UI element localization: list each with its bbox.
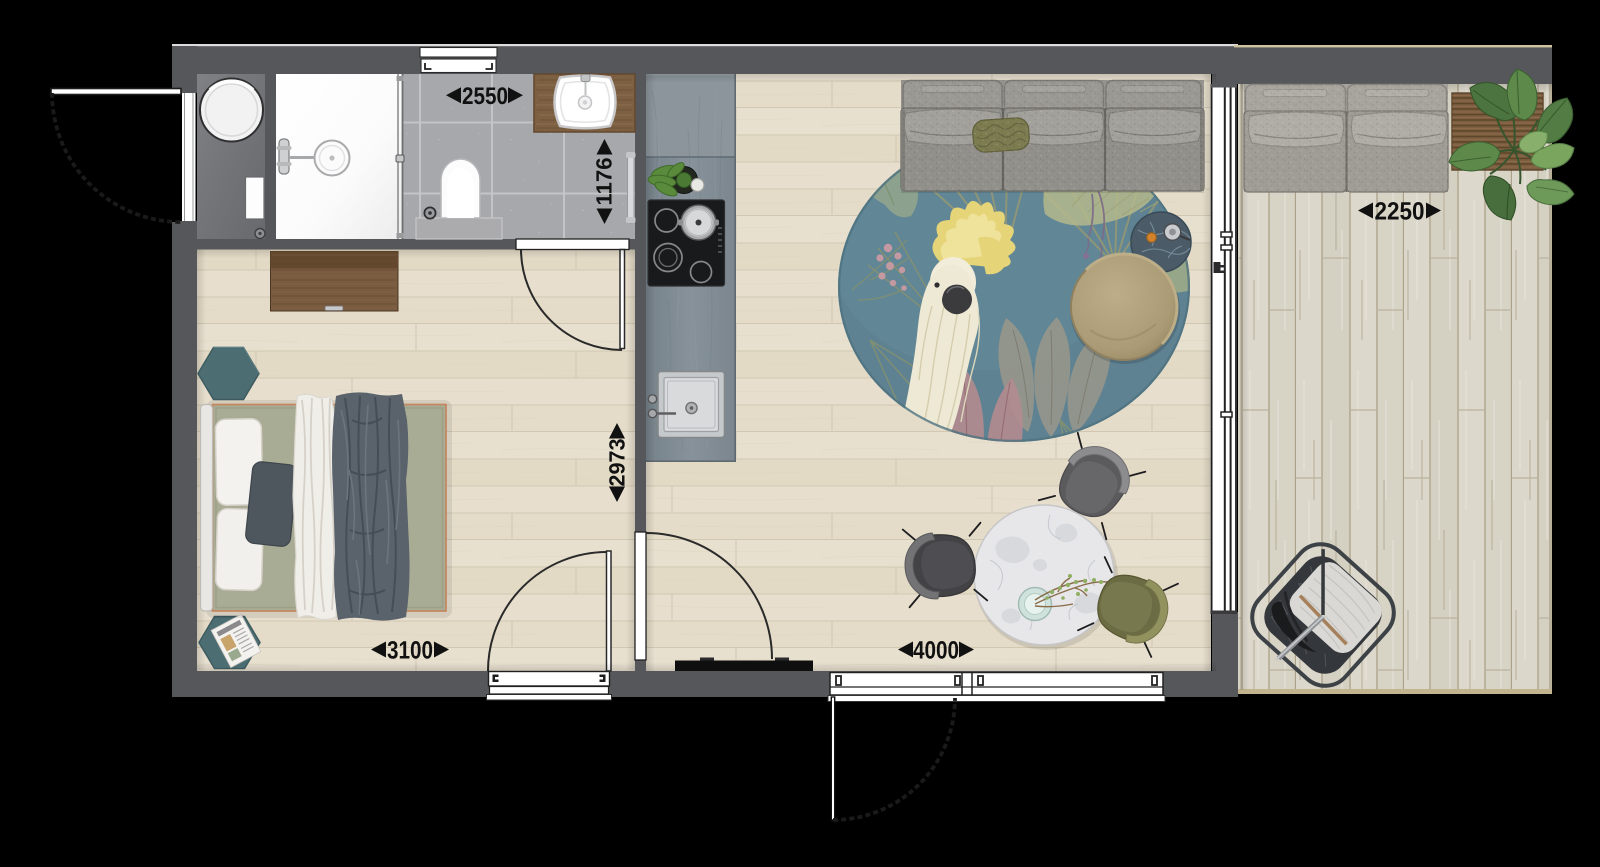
svg-text:1176: 1176 (592, 158, 617, 206)
svg-text:3100: 3100 (387, 637, 433, 665)
svg-text:4000: 4000 (913, 637, 959, 665)
svg-text:2973: 2973 (605, 439, 630, 487)
svg-text:2250: 2250 (1375, 198, 1425, 226)
svg-text:2550: 2550 (462, 83, 508, 110)
